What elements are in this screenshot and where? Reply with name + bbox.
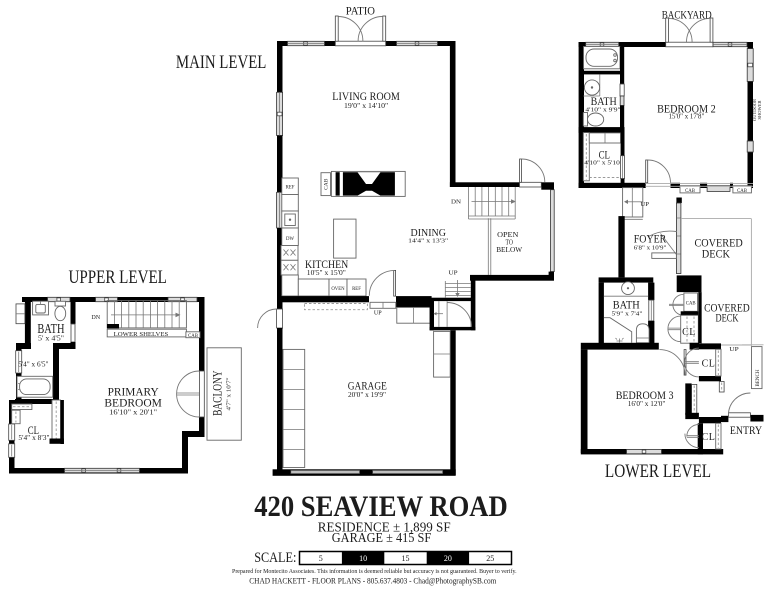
svg-text:UP: UP <box>374 310 382 317</box>
svg-text:UP: UP <box>729 346 739 353</box>
svg-text:DECK: DECK <box>702 247 730 261</box>
svg-text:5'9" x 7'4": 5'9" x 7'4" <box>612 311 643 318</box>
svg-text:4'7" x 10'7": 4'7" x 10'7" <box>227 377 233 411</box>
svg-text:SCALE:: SCALE: <box>254 550 296 566</box>
svg-text:DN: DN <box>91 314 100 321</box>
svg-text:5'4" x 6'5": 5'4" x 6'5" <box>18 360 48 369</box>
svg-text:10: 10 <box>359 554 367 563</box>
svg-text:CAB: CAB <box>737 189 747 194</box>
svg-text:LIVING ROOM: LIVING ROOM <box>332 89 400 103</box>
svg-text:BELOW: BELOW <box>496 245 523 254</box>
svg-text:CL: CL <box>682 327 696 338</box>
svg-text:BEDROOM: BEDROOM <box>104 396 162 410</box>
svg-text:19'0" x 14'10": 19'0" x 14'10" <box>344 102 388 110</box>
svg-text:5: 5 <box>319 554 323 563</box>
svg-text:16'10" x 20'1": 16'10" x 20'1" <box>109 409 157 417</box>
svg-text:DN: DN <box>451 199 461 206</box>
svg-text:CAB: CAB <box>685 189 695 194</box>
svg-text:15: 15 <box>402 554 410 563</box>
svg-text:4'10" x 5'10": 4'10" x 5'10" <box>584 159 623 166</box>
svg-text:20'0" x 19'9": 20'0" x 19'9" <box>348 391 386 399</box>
svg-text:14'4" x 13'3": 14'4" x 13'3" <box>408 238 448 245</box>
svg-text:BACLONY: BACLONY <box>210 370 225 416</box>
svg-text:4'10" x 9'9": 4'10" x 9'9" <box>585 107 621 114</box>
svg-text:LOWER LEVEL: LOWER LEVEL <box>605 461 711 482</box>
svg-text:20: 20 <box>444 554 452 563</box>
svg-text:10'5" x 15'0": 10'5" x 15'0" <box>307 269 346 277</box>
svg-text:LOWER SHELVES: LOWER SHELVES <box>114 331 169 338</box>
svg-text:REF: REF <box>352 287 361 292</box>
svg-text:MAIN LEVEL: MAIN LEVEL <box>176 52 267 73</box>
svg-text:15'0" x 17'8": 15'0" x 17'8" <box>669 113 705 121</box>
svg-text:SHOWER: SHOWER <box>757 101 762 120</box>
svg-text:6'8" x 10'9": 6'8" x 10'9" <box>634 245 667 252</box>
svg-text:CAB: CAB <box>324 178 330 190</box>
svg-text:DECK: DECK <box>716 311 739 325</box>
svg-text:CHAD HACKETT - FLOOR PLANS - 8: CHAD HACKETT - FLOOR PLANS - 805.637.480… <box>249 576 496 586</box>
svg-text:Prepared for Montecito Associa: Prepared for Montecito Associates. This … <box>232 568 517 575</box>
svg-text:25: 25 <box>486 554 494 563</box>
svg-text:5'4" x 8'3": 5'4" x 8'3" <box>18 434 49 442</box>
svg-text:5' x 4'5": 5' x 4'5" <box>38 334 64 342</box>
svg-text:UP: UP <box>449 269 459 276</box>
svg-text:UP: UP <box>640 201 649 208</box>
svg-text:UPPER LEVEL: UPPER LEVEL <box>69 267 167 288</box>
svg-text:FOYER: FOYER <box>634 231 667 245</box>
svg-text:420 SEAVIEW ROAD: 420 SEAVIEW ROAD <box>254 490 508 523</box>
svg-text:REF: REF <box>286 186 295 191</box>
svg-text:CL: CL <box>702 359 716 370</box>
svg-text:GARAGE ± 415 SF: GARAGE ± 415 SF <box>332 530 432 545</box>
svg-text:OVEN: OVEN <box>331 287 345 292</box>
svg-text:PATIO: PATIO <box>346 4 375 18</box>
svg-text:CL: CL <box>702 432 716 443</box>
svg-text:CAB: CAB <box>188 334 198 339</box>
svg-text:CAB: CAB <box>686 302 696 307</box>
svg-text:BENCH: BENCH <box>756 369 761 386</box>
svg-text:16'0" x 12'0": 16'0" x 12'0" <box>628 400 666 408</box>
svg-text:DW: DW <box>286 237 294 242</box>
svg-text:BATH: BATH <box>613 298 640 312</box>
svg-text:ENTRY: ENTRY <box>730 423 762 437</box>
